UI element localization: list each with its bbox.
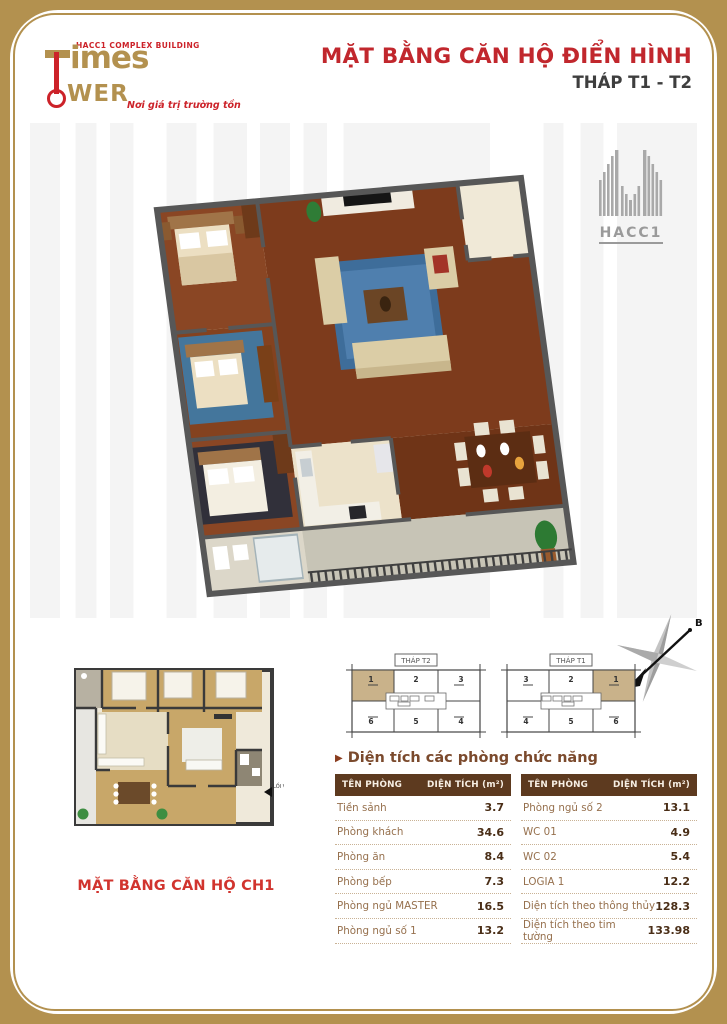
frame-corner-ornament — [669, 966, 727, 1024]
table-row: LOGIA 112.2 — [521, 870, 697, 895]
unit-number: 1 — [613, 675, 618, 684]
unit-number: 2 — [413, 675, 418, 684]
col-area-header: DIỆN TÍCH (m²) — [427, 780, 504, 790]
room-name: Phòng ngủ MASTER — [337, 900, 438, 912]
col-area-header: DIỆN TÍCH (m²) — [613, 780, 690, 790]
room-area: 128.3 — [655, 900, 690, 913]
keyplan-label: THÁP T1 — [555, 656, 586, 665]
keyplan-thap-t1: THÁP T1 3 2 1 4 5 6 — [496, 652, 646, 748]
unit-number: 2 — [568, 675, 573, 684]
logo-clock-icon — [47, 89, 66, 108]
table-row: Diện tích theo thông thủy128.3 — [521, 894, 697, 919]
room-name: WC 02 — [523, 851, 557, 863]
table-row: Tiền sảnh3.7 — [335, 796, 511, 821]
frame-edge-top — [0, 0, 727, 10]
table-row: Phòng bếp7.3 — [335, 870, 511, 895]
hacc1-towers-icon — [599, 150, 663, 218]
room-name: Phòng ngủ số 1 — [337, 925, 417, 937]
area-table-section: ▶Diện tích các phòng chức năng TÊN PHÒNG… — [335, 750, 697, 944]
frame-corner-ornament — [0, 966, 58, 1024]
room-area: 13.1 — [663, 801, 690, 814]
col-room-header: TÊN PHÒNG — [342, 780, 402, 790]
page-title-block: MẶT BẰNG CĂN HỘ ĐIỂN HÌNH THÁP T1 - T2 — [321, 44, 692, 92]
unit-number: 4 — [458, 717, 463, 726]
table-header: TÊN PHÒNG DIỆN TÍCH (m²) — [521, 774, 697, 796]
room-name: Phòng ngủ số 2 — [523, 802, 603, 814]
compass-north-dot — [688, 628, 692, 632]
room-name: Phòng bếp — [337, 876, 392, 888]
room-name: WC 01 — [523, 826, 557, 838]
floorplan-3d-render — [105, 148, 585, 648]
unit-number: 6 — [368, 717, 373, 726]
page-title: MẶT BẰNG CĂN HỘ ĐIỂN HÌNH — [321, 44, 692, 69]
table-row: WC 014.9 — [521, 821, 697, 846]
table-header: TÊN PHÒNG DIỆN TÍCH (m²) — [335, 774, 511, 796]
room-area: 3.7 — [485, 801, 505, 814]
col-room-header: TÊN PHÒNG — [528, 780, 588, 790]
hacc1-watermark: HACC1 — [594, 150, 668, 244]
area-section-title-text: Diện tích các phòng chức năng — [348, 750, 598, 766]
unit-number: 1 — [368, 675, 373, 684]
unit-number: 4 — [523, 717, 528, 726]
room-area: 7.3 — [485, 875, 505, 888]
frame-edge-right — [717, 0, 727, 1024]
times-tower-logo: HACC1 COMPLEX BUILDING imes WER Nơi giá … — [45, 34, 255, 112]
plan2d-caption: MẶT BẰNG CĂN HỘ CH1 — [60, 878, 292, 894]
floorplan-2d: LỐI VÀO — [66, 664, 284, 864]
room-area: 133.98 — [648, 924, 690, 937]
room-area: 13.2 — [477, 924, 504, 937]
unit-number: 6 — [613, 717, 618, 726]
unit-number: 3 — [458, 675, 463, 684]
frame-corner-ornament — [0, 0, 58, 58]
logo-word-tower: WER — [67, 81, 129, 107]
room-name: Diện tích theo thông thủy — [523, 900, 655, 912]
room-area: 12.2 — [663, 875, 690, 888]
room-name: Diện tích theo tim tường — [523, 919, 648, 943]
table-row: WC 025.4 — [521, 845, 697, 870]
brochure-page: HACC1 COMPLEX BUILDING imes WER Nơi giá … — [0, 0, 727, 1024]
area-table-right: TÊN PHÒNG DIỆN TÍCH (m²) Phòng ngủ số 21… — [521, 774, 697, 944]
brand-tagline: Nơi giá trị trường tồn — [127, 100, 241, 111]
frame-edge-left — [0, 0, 10, 1024]
table-row: Phòng ngủ số 213.1 — [521, 796, 697, 821]
unit-number: 3 — [523, 675, 528, 684]
table-row: Phòng ngủ số 113.2 — [335, 919, 511, 944]
frame-corner-ornament — [669, 0, 727, 58]
room-area: 34.6 — [477, 826, 504, 839]
table-row: Phòng khách34.6 — [335, 821, 511, 846]
apartment-isometric-group — [157, 178, 574, 594]
area-tables: TÊN PHÒNG DIỆN TÍCH (m²) Tiền sảnh3.7 Ph… — [335, 774, 697, 944]
keyplan-thap-t2: THÁP T2 1 2 3 6 5 4 — [341, 652, 491, 748]
table-row: Phòng ăn8.4 — [335, 845, 511, 870]
unit-number: 5 — [413, 717, 418, 726]
table-row: Diện tích theo tim tường133.98 — [521, 919, 697, 944]
triangle-bullet-icon: ▶ — [335, 753, 343, 764]
area-table-left: TÊN PHÒNG DIỆN TÍCH (m²) Tiền sảnh3.7 Ph… — [335, 774, 511, 944]
keyplan-label: THÁP T2 — [400, 656, 431, 665]
room-area: 5.4 — [671, 850, 691, 863]
room-name: LOGIA 1 — [523, 876, 564, 888]
room-name: Phòng khách — [337, 826, 403, 838]
room-name: Phòng ăn — [337, 851, 385, 863]
entrance-label: LỐI VÀO — [273, 782, 284, 790]
room-area: 4.9 — [671, 826, 691, 839]
area-section-title: ▶Diện tích các phòng chức năng — [335, 750, 697, 766]
logo-t-stem — [54, 52, 59, 94]
room-name: Tiền sảnh — [337, 802, 387, 814]
unit-number: 5 — [568, 717, 573, 726]
hacc1-watermark-label: HACC1 — [599, 225, 664, 244]
compass-north-label: B — [695, 618, 703, 629]
frame-edge-bottom — [0, 1014, 727, 1024]
table-row: Phòng ngủ MASTER16.5 — [335, 894, 511, 919]
room-area: 16.5 — [477, 900, 504, 913]
room-area: 8.4 — [485, 850, 505, 863]
page-subtitle: THÁP T1 - T2 — [321, 73, 692, 92]
logo-word-times: imes — [70, 40, 148, 76]
